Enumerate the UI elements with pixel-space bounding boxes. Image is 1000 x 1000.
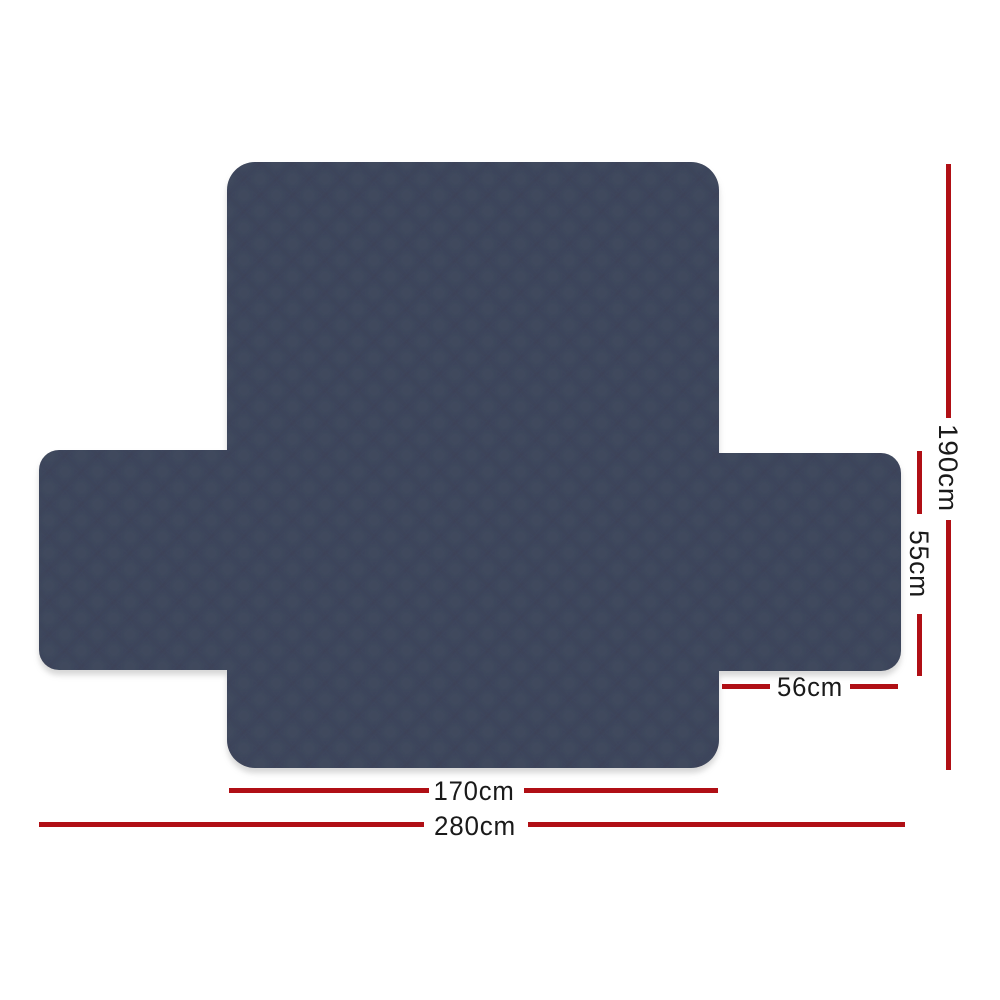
svg-text:280cm: 280cm (434, 811, 516, 841)
svg-text:56cm: 56cm (777, 672, 843, 702)
svg-text:170cm: 170cm (434, 776, 515, 806)
svg-text:55cm: 55cm (904, 530, 934, 598)
svg-text:190cm: 190cm (933, 424, 963, 512)
